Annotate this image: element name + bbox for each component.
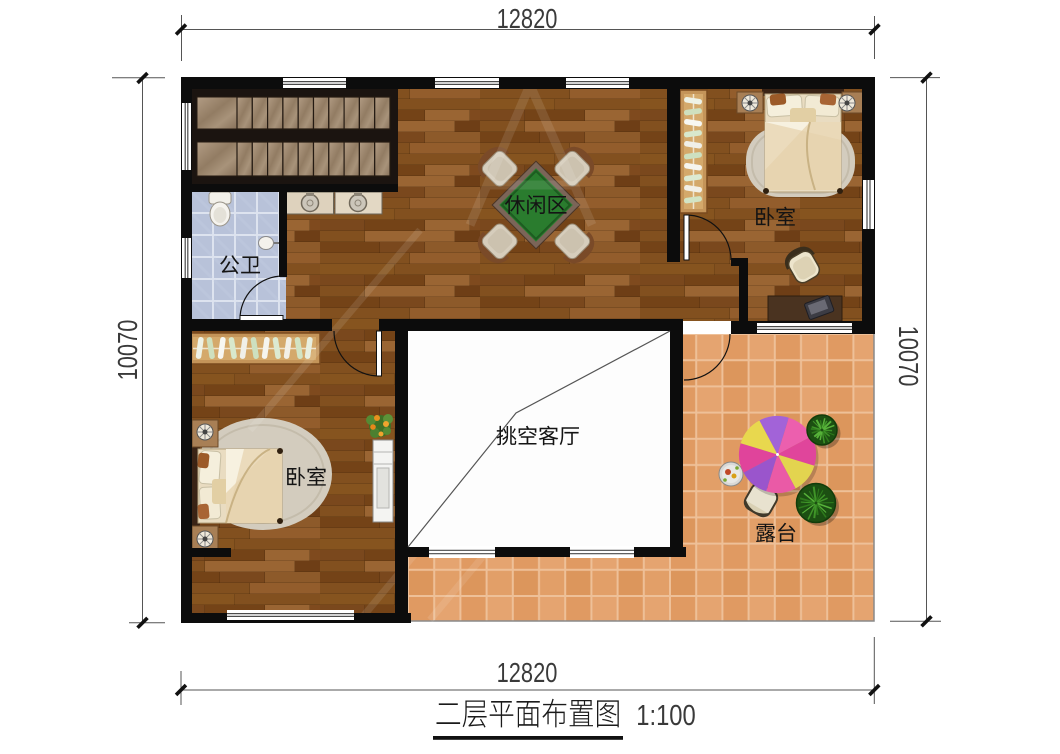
svg-text:10070: 10070 [892,326,923,387]
svg-text:1:100: 1:100 [636,699,695,732]
svg-text:12820: 12820 [497,657,558,688]
svg-text:10070: 10070 [112,320,143,381]
svg-text:12820: 12820 [497,3,558,34]
